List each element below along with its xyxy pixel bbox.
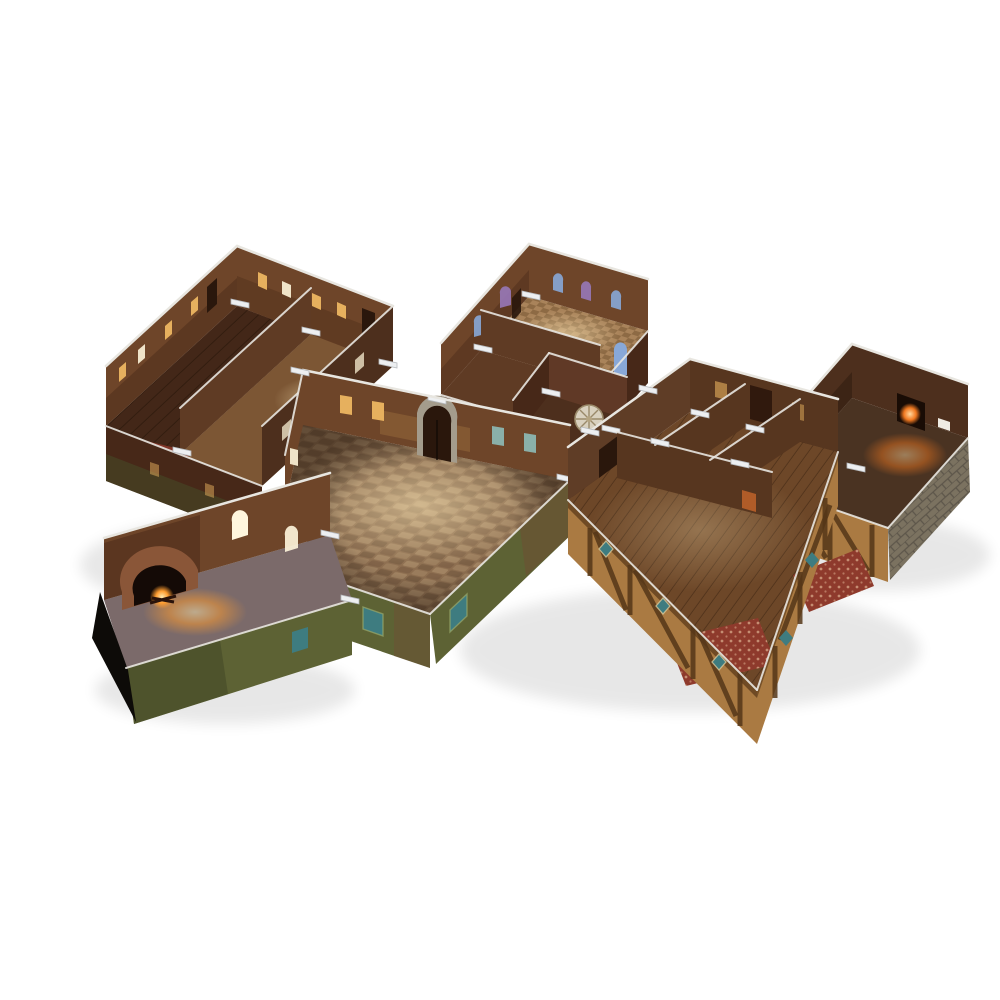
- stone-arch-doorway: [417, 395, 457, 463]
- wardrobe: [750, 385, 772, 425]
- product-image-canvas: [0, 0, 1000, 1000]
- terrain-set-illustration: [0, 0, 1000, 1000]
- forge-floor-glow: [863, 433, 947, 477]
- hall-left-window: [290, 448, 298, 466]
